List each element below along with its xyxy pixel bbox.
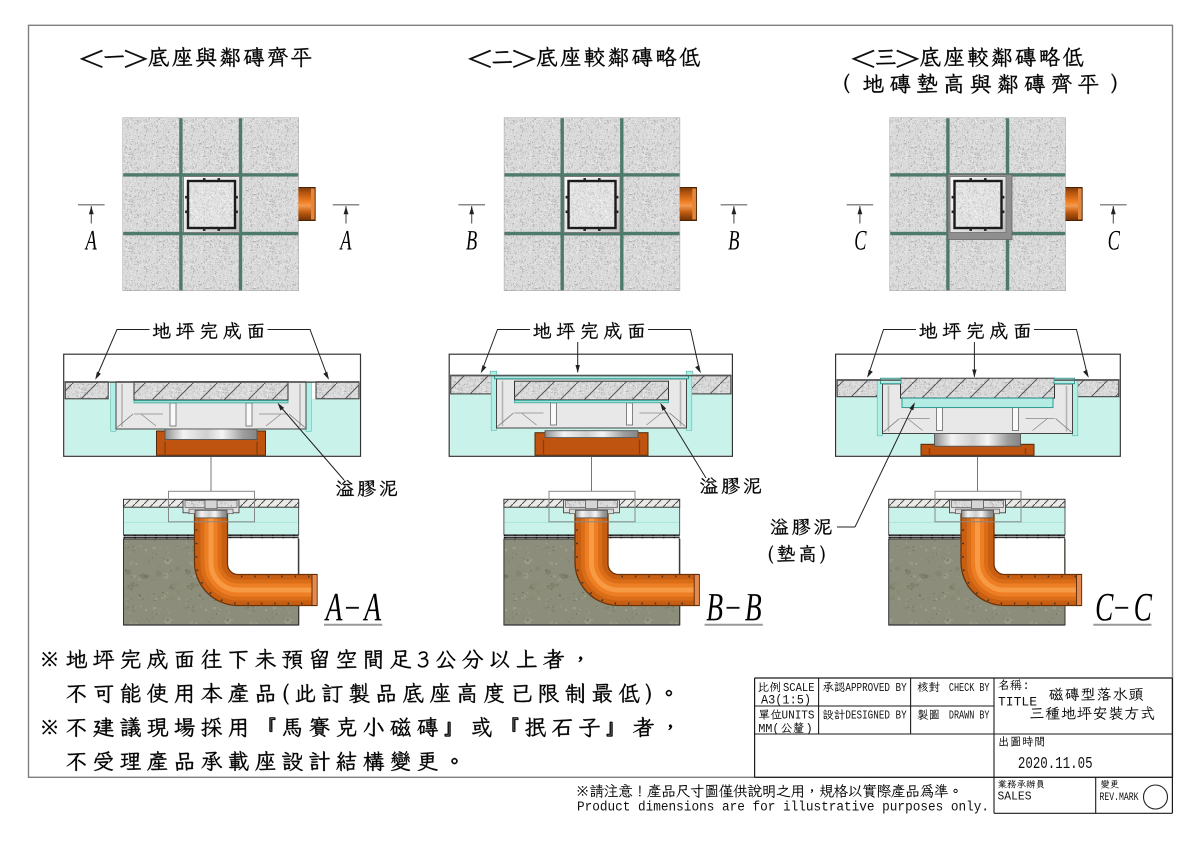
svg-text:CHECK BY: CHECK BY [949,681,990,695]
svg-text:TITLE: TITLE [998,696,1037,710]
svg-text:Product dimensions are for ill: Product dimensions are for illustrative … [577,801,989,816]
svg-text::: : [1023,679,1030,693]
svg-text:2020.11.05: 2020.11.05 [1018,755,1093,774]
svg-text:UNITS: UNITS [782,709,815,723]
svg-text:SALES: SALES [998,791,1032,804]
svg-text:MM(: MM( [758,722,779,736]
svg-text:REV.MARK: REV.MARK [1100,792,1139,804]
svg-text:APPROVED BY: APPROVED BY [845,681,906,695]
svg-text:DESIGNED BY: DESIGNED BY [845,709,906,723]
svg-text:DRAWN BY: DRAWN BY [949,709,990,723]
svg-text:A3(1:5): A3(1:5) [761,694,811,708]
svg-text:): ) [806,722,813,736]
